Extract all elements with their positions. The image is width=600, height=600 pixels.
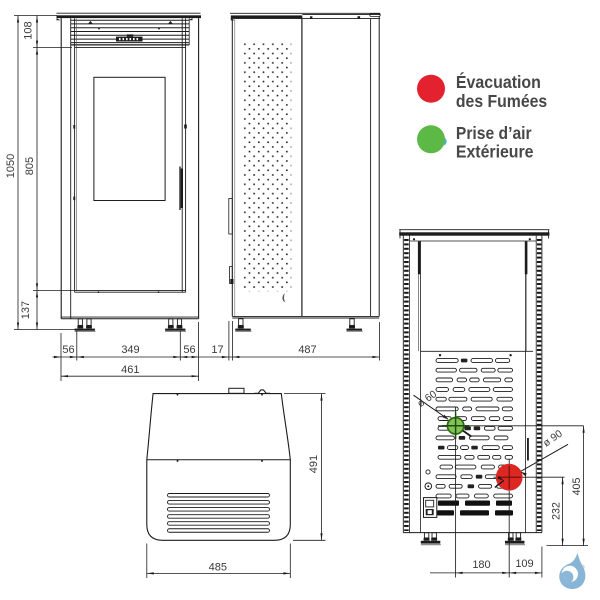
svg-text:461: 461: [121, 364, 139, 376]
svg-text:491: 491: [308, 455, 320, 473]
svg-text:180: 180: [472, 559, 490, 571]
svg-text:487: 487: [298, 344, 316, 356]
svg-text:108: 108: [23, 21, 35, 39]
svg-text:349: 349: [121, 344, 139, 356]
svg-text:109: 109: [515, 558, 533, 570]
svg-text:des Fumées: des Fumées: [456, 91, 547, 111]
svg-text:Extérieure: Extérieure: [456, 141, 534, 161]
svg-text:56: 56: [183, 344, 195, 356]
svg-text:®: ®: [581, 564, 585, 571]
svg-text:Évacuation: Évacuation: [456, 72, 541, 92]
svg-text:137: 137: [20, 301, 32, 319]
svg-text:405: 405: [571, 478, 583, 496]
svg-text:1050: 1050: [5, 154, 17, 178]
svg-text:232: 232: [551, 502, 563, 520]
svg-text:17: 17: [211, 344, 223, 356]
svg-text:Prise d’air: Prise d’air: [456, 123, 532, 143]
svg-text:805: 805: [24, 157, 36, 175]
svg-text:56: 56: [62, 344, 74, 356]
svg-text:485: 485: [209, 562, 227, 574]
